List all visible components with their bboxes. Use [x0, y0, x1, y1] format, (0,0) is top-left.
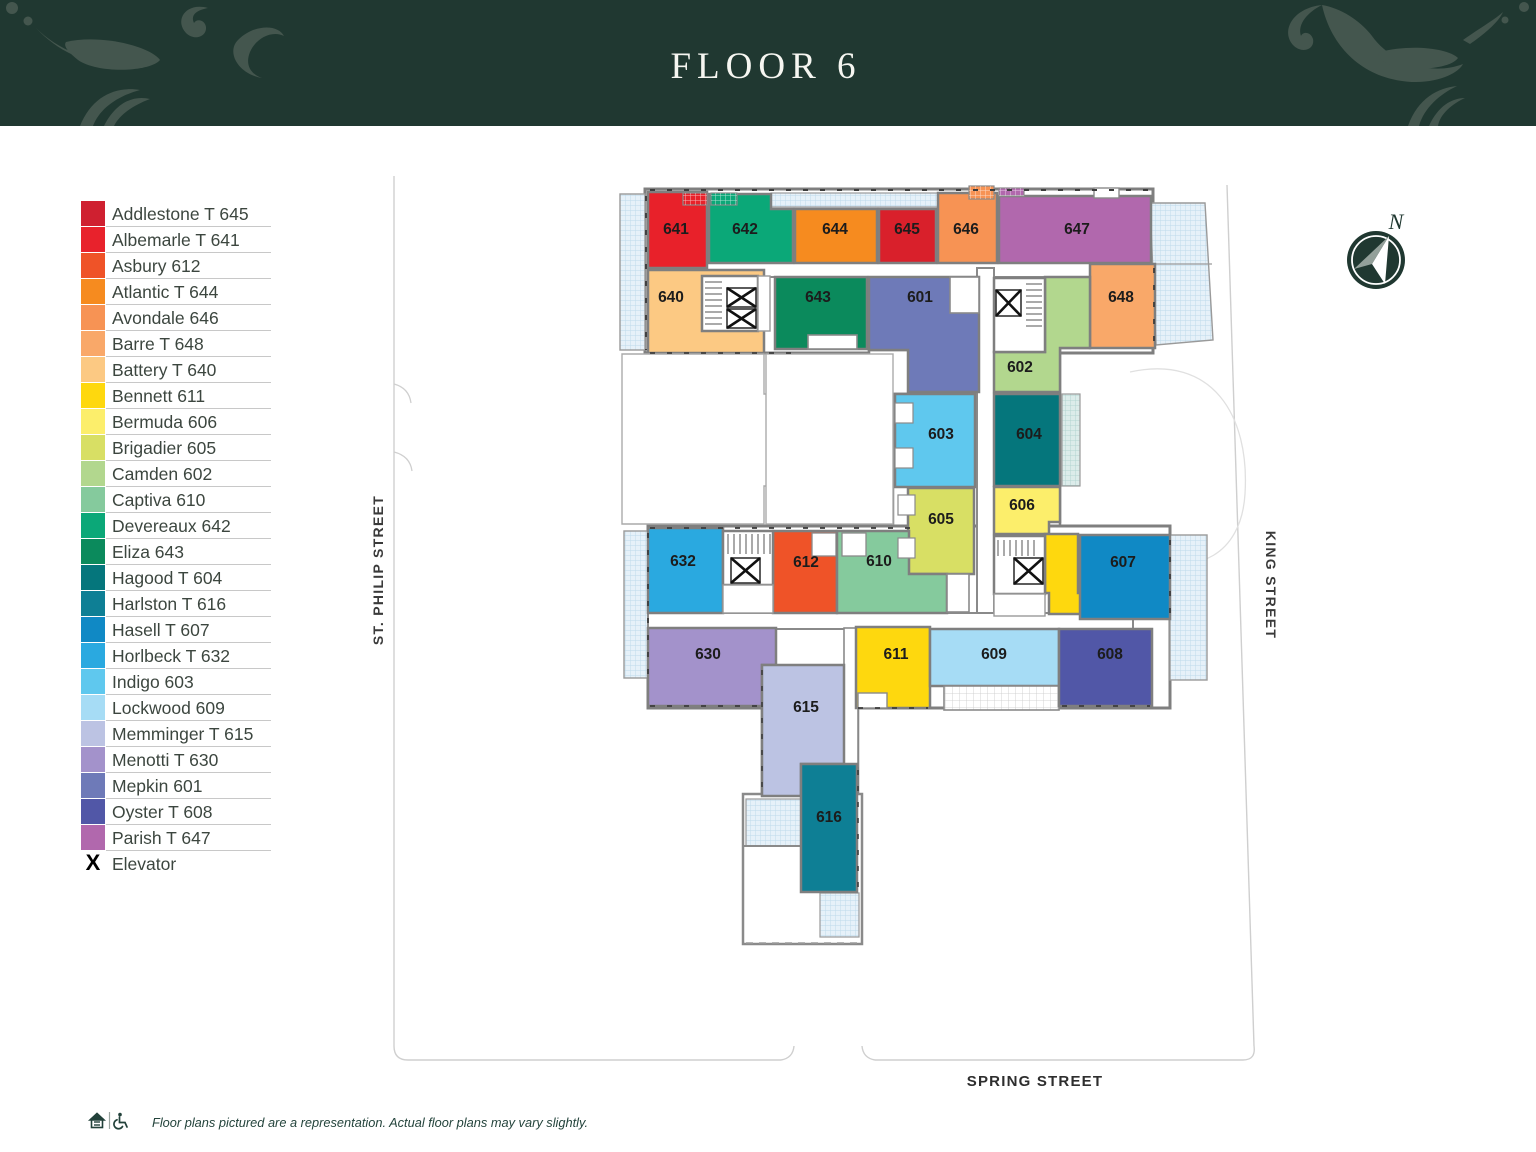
svg-text:606: 606 [1009, 497, 1035, 514]
svg-text:612: 612 [793, 554, 819, 571]
svg-text:Lockwood 609: Lockwood 609 [112, 698, 225, 718]
svg-text:X: X [86, 850, 101, 875]
svg-text:Memminger T 615: Memminger T 615 [112, 724, 253, 744]
svg-text:607: 607 [1110, 554, 1136, 571]
svg-text:Albemarle T 641: Albemarle T 641 [112, 230, 240, 250]
svg-text:632: 632 [670, 553, 696, 570]
svg-text:640: 640 [658, 289, 684, 306]
svg-text:Mepkin 601: Mepkin 601 [112, 776, 202, 796]
svg-text:Bermuda 606: Bermuda 606 [112, 412, 217, 432]
svg-text:KING STREET: KING STREET [1263, 531, 1279, 639]
svg-text:Atlantic T 644: Atlantic T 644 [112, 282, 219, 302]
svg-text:645: 645 [894, 221, 920, 238]
svg-text:642: 642 [732, 221, 758, 238]
svg-text:Brigadier 605: Brigadier 605 [112, 438, 216, 458]
svg-text:Harlston T 616: Harlston T 616 [112, 594, 226, 614]
svg-text:Barre T 648: Barre T 648 [112, 334, 204, 354]
svg-text:641: 641 [663, 221, 689, 238]
svg-text:Floor plans pictured are a rep: Floor plans pictured are a representatio… [152, 1115, 588, 1130]
svg-text:Hagood T 604: Hagood T 604 [112, 568, 223, 588]
svg-text:N: N [1388, 209, 1405, 234]
svg-text:615: 615 [793, 699, 819, 716]
svg-text:601: 601 [907, 289, 933, 306]
svg-text:Menotti T 630: Menotti T 630 [112, 750, 219, 770]
svg-text:647: 647 [1064, 221, 1090, 238]
svg-text:602: 602 [1007, 359, 1033, 376]
svg-text:Elevator: Elevator [112, 854, 176, 874]
svg-text:Oyster T 608: Oyster T 608 [112, 802, 213, 822]
svg-text:605: 605 [928, 511, 954, 528]
svg-text:Asbury 612: Asbury 612 [112, 256, 201, 276]
svg-text:644: 644 [822, 221, 848, 238]
svg-text:ST. PHILIP STREET: ST. PHILIP STREET [370, 495, 386, 645]
svg-text:646: 646 [953, 221, 979, 238]
svg-text:Indigo 603: Indigo 603 [112, 672, 194, 692]
svg-text:616: 616 [816, 809, 842, 826]
svg-text:648: 648 [1108, 289, 1134, 306]
svg-text:Battery T 640: Battery T 640 [112, 360, 217, 380]
svg-text:FLOOR 6: FLOOR 6 [670, 46, 861, 87]
svg-text:609: 609 [981, 646, 1007, 663]
svg-text:Camden 602: Camden 602 [112, 464, 212, 484]
svg-text:Horlbeck T 632: Horlbeck T 632 [112, 646, 230, 666]
svg-text:630: 630 [695, 646, 721, 663]
svg-text:Parish T 647: Parish T 647 [112, 828, 211, 848]
svg-text:603: 603 [928, 426, 954, 443]
svg-text:608: 608 [1097, 646, 1123, 663]
svg-text:Devereaux 642: Devereaux 642 [112, 516, 231, 536]
svg-text:Addlestone T 645: Addlestone T 645 [112, 204, 249, 224]
svg-text:643: 643 [805, 289, 831, 306]
svg-text:610: 610 [866, 553, 892, 570]
svg-text:611: 611 [883, 646, 908, 663]
svg-text:604: 604 [1016, 426, 1042, 443]
svg-text:Avondale 646: Avondale 646 [112, 308, 219, 328]
svg-text:Eliza 643: Eliza 643 [112, 542, 184, 562]
svg-text:Captiva 610: Captiva 610 [112, 490, 206, 510]
svg-text:SPRING STREET: SPRING STREET [967, 1073, 1103, 1090]
svg-text:Hasell T 607: Hasell T 607 [112, 620, 210, 640]
svg-text:Bennett 611: Bennett 611 [112, 386, 205, 406]
